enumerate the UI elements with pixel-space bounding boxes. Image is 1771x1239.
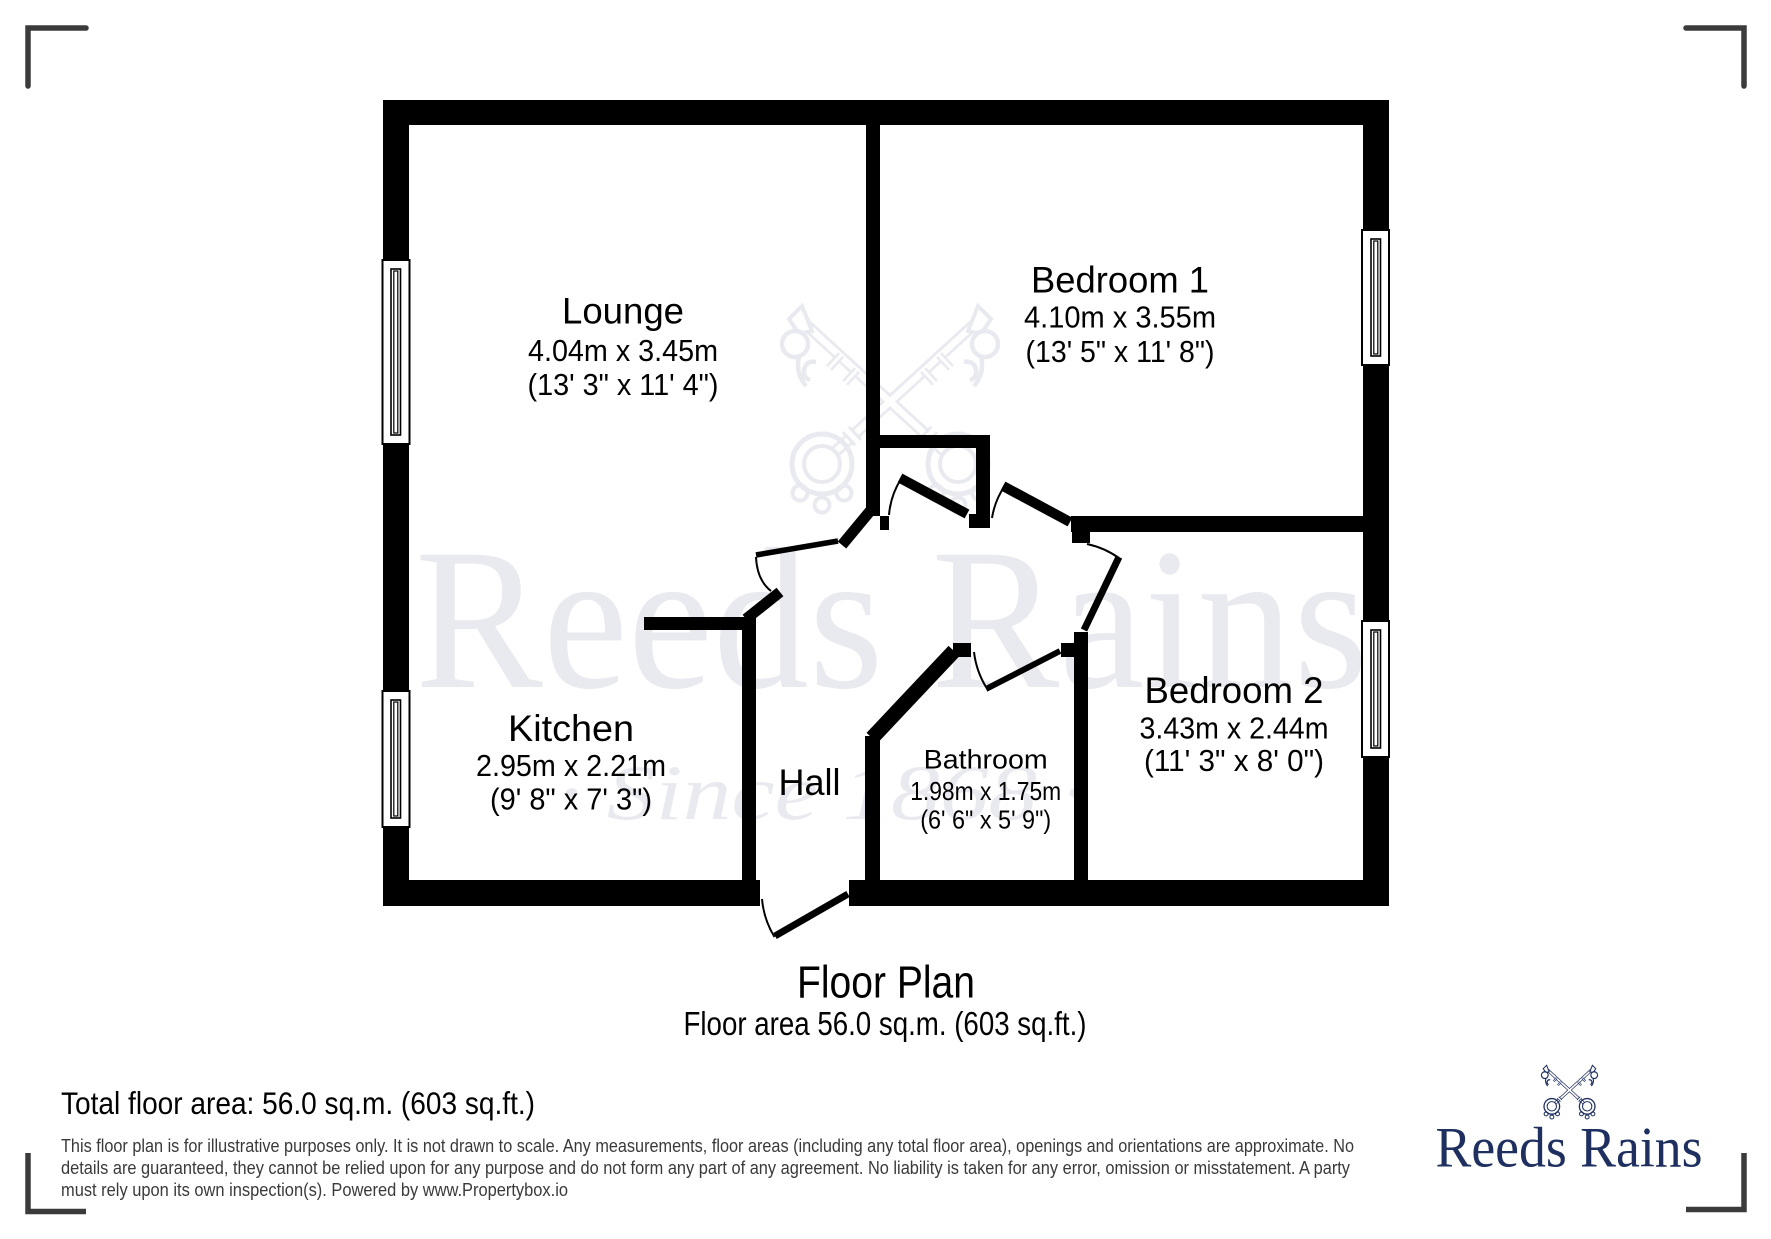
svg-text:(6' 6" x 5' 9"): (6' 6" x 5' 9") [920,805,1051,835]
svg-text:must rely upon its own inspect: must rely upon its own inspection(s). Po… [61,1180,568,1200]
svg-text:(11' 3" x 8' 0"): (11' 3" x 8' 0") [1144,743,1324,778]
svg-text:4.10m x 3.55m: 4.10m x 3.55m [1024,300,1216,335]
svg-text:3.43m x 2.44m: 3.43m x 2.44m [1140,711,1329,746]
svg-text:(13' 3" x 11' 4"): (13' 3" x 11' 4") [528,367,719,402]
svg-text:details are guaranteed, they c: details are guaranteed, they cannot be r… [61,1158,1350,1178]
svg-text:Lounge: Lounge [562,291,684,332]
svg-text:Bedroom 2: Bedroom 2 [1145,670,1324,711]
svg-text:(9' 8" x 7' 3"): (9' 8" x 7' 3") [490,782,652,817]
svg-text:Floor Plan: Floor Plan [797,957,975,1008]
svg-text:(13' 5" x 11' 8"): (13' 5" x 11' 8") [1026,334,1215,369]
svg-text:Bedroom 1: Bedroom 1 [1031,260,1209,301]
svg-text:Kitchen: Kitchen [508,708,634,749]
svg-text:Bathroom: Bathroom [924,745,1048,775]
svg-text:2.95m x 2.21m: 2.95m x 2.21m [476,748,666,783]
svg-text:4.04m x 3.45m: 4.04m x 3.45m [528,333,718,368]
svg-text:Floor area 56.0 sq.m. (603 sq.: Floor area 56.0 sq.m. (603 sq.ft.) [684,1005,1087,1042]
svg-text:Reeds Rains: Reeds Rains [1436,1117,1703,1180]
svg-text:1.98m x 1.75m: 1.98m x 1.75m [910,776,1061,806]
svg-text:Total floor area: 56.0 sq.m. (: Total floor area: 56.0 sq.m. (603 sq.ft.… [61,1086,535,1121]
svg-text:Hall: Hall [779,762,841,803]
svg-text:This floor plan is for illustr: This floor plan is for illustrative purp… [61,1136,1354,1156]
